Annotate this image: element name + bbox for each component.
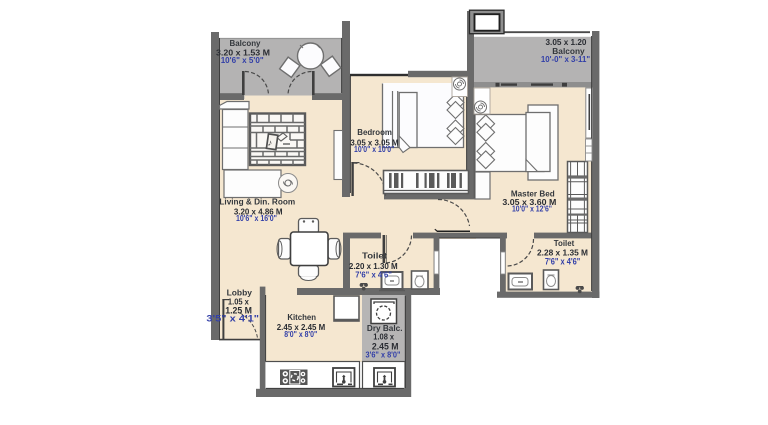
svg-text:10'6" x 16'0": 10'6" x 16'0" — [236, 213, 277, 223]
svg-text:Toilet: Toilet — [554, 238, 575, 248]
svg-text:Living & Din. Room: Living & Din. Room — [219, 197, 295, 207]
svg-text:7'6" x 4'6": 7'6" x 4'6" — [355, 269, 392, 279]
svg-text:Kitchen: Kitchen — [287, 312, 316, 322]
svg-text:10'-0" x 3-11": 10'-0" x 3-11" — [541, 54, 590, 64]
svg-text:8'0" x 8'0": 8'0" x 8'0" — [284, 329, 317, 339]
svg-text:10'0" x 10'0": 10'0" x 10'0" — [354, 144, 394, 154]
svg-text:Balcony: Balcony — [230, 38, 261, 48]
svg-text:3'5" x 4'1": 3'5" x 4'1" — [206, 314, 259, 325]
svg-text:10'6" x 5'0": 10'6" x 5'0" — [221, 55, 264, 65]
svg-text:1.08 x: 1.08 x — [373, 332, 394, 341]
svg-text:7'6" x 4'6": 7'6" x 4'6" — [545, 256, 580, 266]
svg-text:Lobby: Lobby — [227, 287, 253, 297]
svg-text:3'6" x 8'0": 3'6" x 8'0" — [366, 350, 401, 360]
svg-text:10'0" x 12'6": 10'0" x 12'6" — [512, 204, 552, 214]
svg-text:Bedroom: Bedroom — [357, 127, 392, 137]
